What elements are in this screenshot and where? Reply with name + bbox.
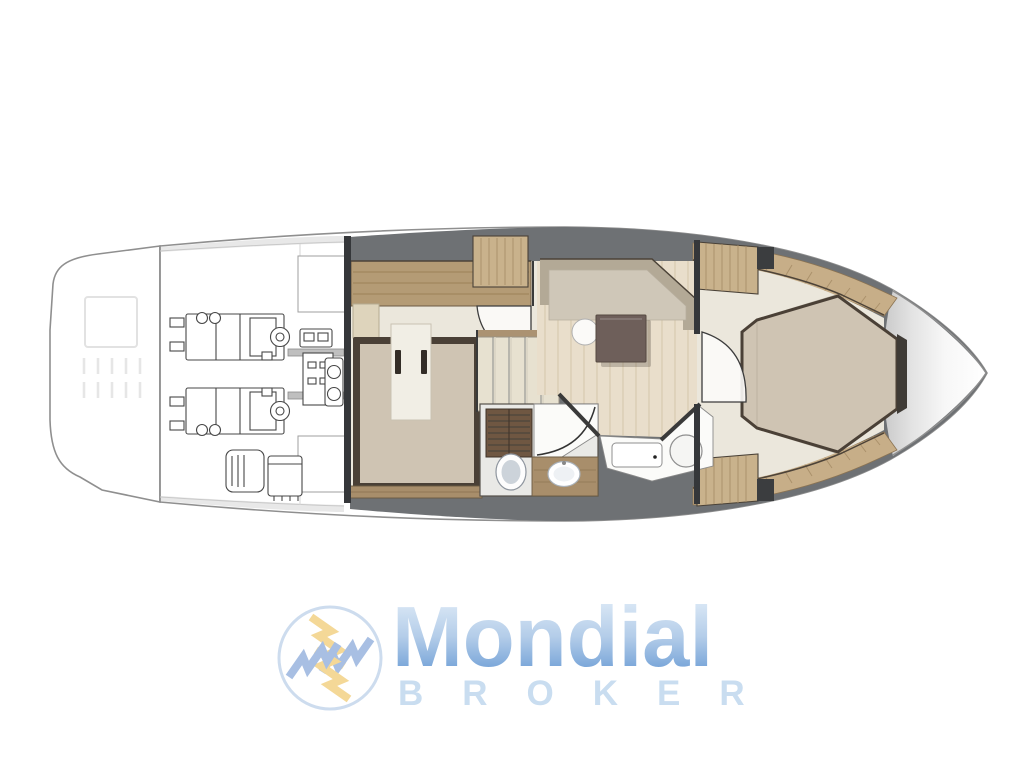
pinwheel-lightning-icon — [274, 602, 386, 714]
logo-brand-text: Mondial — [392, 602, 784, 674]
sink — [532, 457, 598, 496]
dinette-table — [596, 315, 646, 362]
toilet — [496, 454, 526, 490]
mondial-broker-logo: Mondial BROKER — [274, 602, 784, 714]
aft-bed — [350, 324, 482, 498]
bow-bed-headboard — [897, 334, 907, 414]
vanity-cabinet — [486, 409, 532, 457]
dinette-seat — [572, 319, 598, 345]
page: Mondial BROKER — [0, 0, 1024, 768]
logo-text: Mondial BROKER — [392, 602, 784, 711]
logo-subtitle-text: BROKER — [398, 677, 784, 711]
